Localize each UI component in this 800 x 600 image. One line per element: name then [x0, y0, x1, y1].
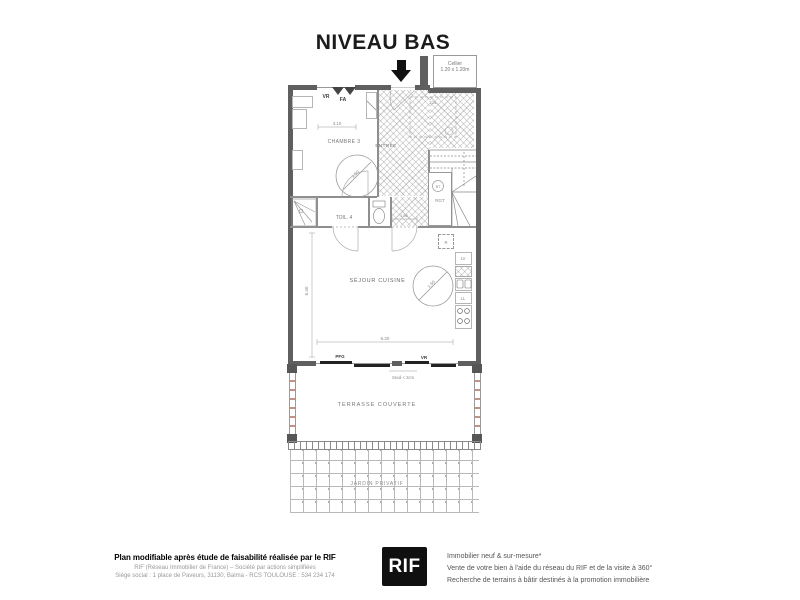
turn-circle-sejour — [413, 266, 453, 306]
footer-plan-note: Plan modifiable après étude de faisabili… — [85, 553, 365, 562]
footer-company-line: RIF (Réseau Immobilier de France) – Soci… — [85, 565, 365, 571]
footer-service-1: Immobilier neuf & sur-mesure* — [447, 553, 652, 560]
label-tol: TOL — [429, 100, 437, 105]
turn-circle-sejour-dim: 1.50 — [426, 279, 436, 289]
sink-bowls-icon — [457, 280, 471, 288]
page: NIVEAU BAS Cellier 1.20 x 1.20m — [0, 0, 800, 600]
dim-sejour-width: 6.20 — [381, 336, 390, 341]
label-bt: BT — [436, 185, 442, 189]
footer-right-block: Immobilier neuf & sur-mesure* Vente de v… — [447, 553, 652, 589]
label-ll: LL — [461, 296, 466, 301]
rif-logo: RIF — [382, 547, 427, 586]
shutter-mark-icon — [344, 87, 356, 95]
dim-hall-width: 1.50 — [400, 213, 409, 218]
wc-toilet-icon — [373, 201, 385, 224]
dimension-lines — [309, 124, 453, 371]
dim-sejour-height: 6.40 — [304, 286, 309, 295]
storage-basin-icon — [445, 127, 453, 135]
door-swings — [332, 91, 418, 251]
shower — [292, 199, 316, 226]
footer-service-2: Vente de votre bien à l'aide du réseau d… — [447, 565, 652, 572]
footer-left-block: Plan modifiable après étude de faisabili… — [85, 553, 365, 579]
dim-chambre-width: 3.10 — [333, 121, 342, 126]
plan-linework: 1.50 1.50 BT RGT TOL — [280, 50, 490, 525]
footer-address-line: Siège social : 1 place de Paveurs, 31130… — [85, 573, 365, 579]
label-rgt: RGT — [435, 198, 445, 203]
stove-burners-icon — [458, 309, 470, 324]
footer-service-3: Recherche de terrains à bâtir destinés à… — [447, 577, 652, 584]
turn-circle-chambre — [336, 155, 378, 197]
label-fridge: R — [444, 240, 447, 245]
shutter-mark-icon — [332, 87, 344, 95]
dim-seuil: Seuil < 2cm — [392, 375, 415, 380]
label-lv: LV — [461, 256, 466, 261]
